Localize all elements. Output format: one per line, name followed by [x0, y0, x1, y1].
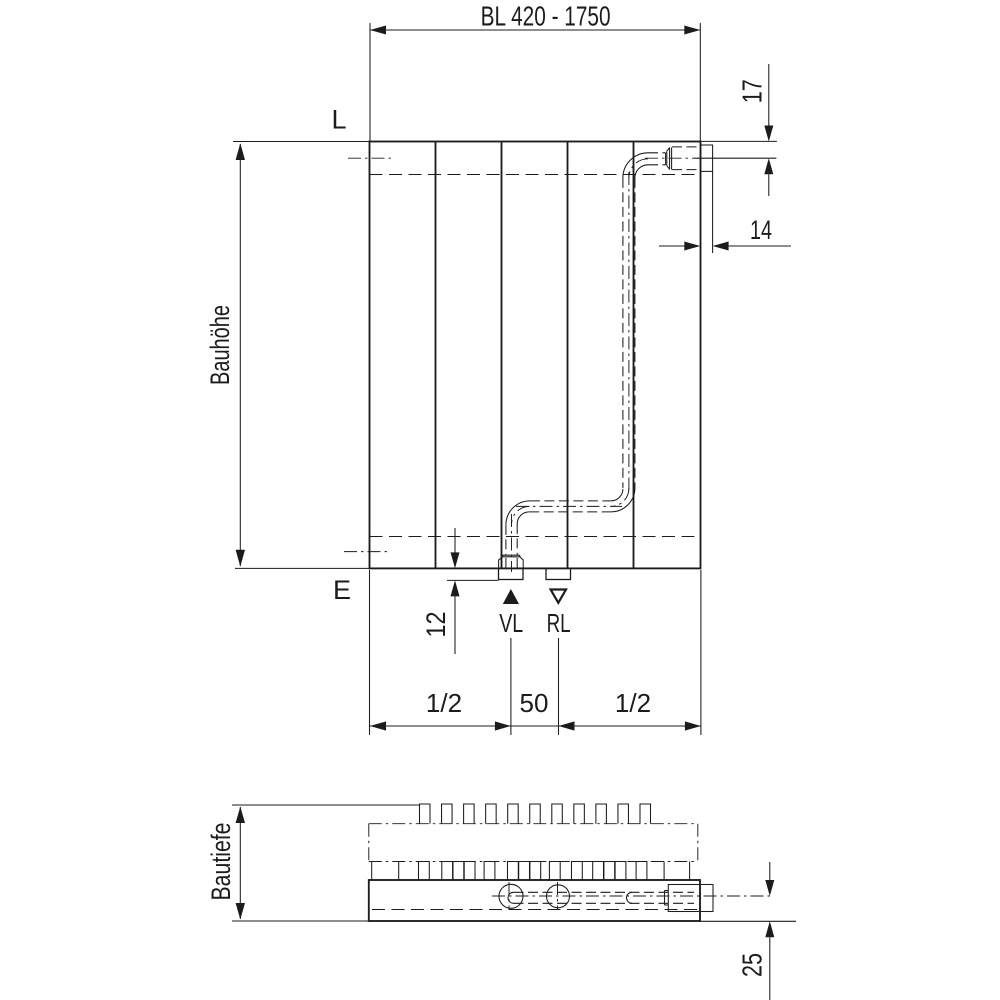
svg-text:VL: VL [499, 608, 523, 638]
svg-text:1/2: 1/2 [615, 688, 651, 718]
svg-text:Bautiefe: Bautiefe [206, 823, 236, 901]
svg-text:17: 17 [737, 79, 768, 103]
svg-text:BL 420 - 1750: BL 420 - 1750 [481, 0, 611, 31]
svg-text:14: 14 [750, 215, 772, 245]
svg-text:Bauhöhe: Bauhöhe [205, 305, 235, 385]
svg-text:L: L [331, 105, 346, 135]
svg-text:12: 12 [421, 612, 451, 638]
svg-text:50: 50 [520, 688, 549, 718]
svg-text:1/2: 1/2 [426, 688, 462, 718]
svg-text:E: E [333, 575, 351, 605]
svg-text:25: 25 [737, 953, 768, 977]
svg-text:RL: RL [547, 608, 571, 638]
